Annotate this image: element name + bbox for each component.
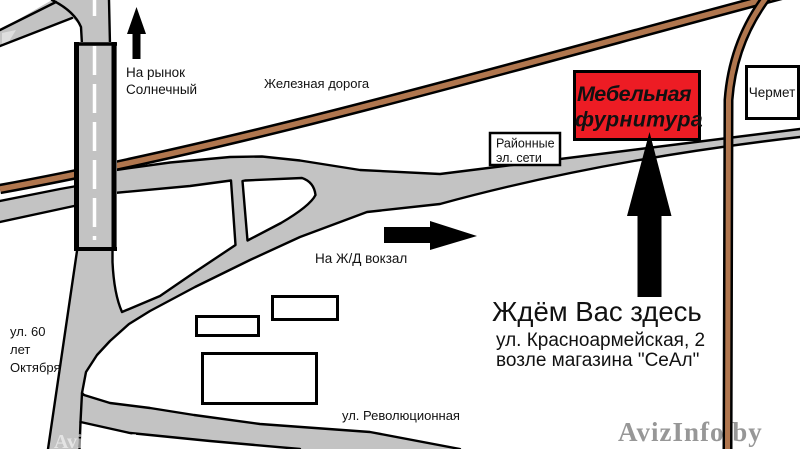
svg-text:Чермет: Чермет: [749, 85, 796, 100]
svg-text:Ждём Вас здесь: Ждём Вас здесь: [492, 296, 702, 327]
svg-text:На рынок: На рынок: [126, 65, 185, 80]
svg-text:фурнитура: фурнитура: [575, 108, 703, 132]
svg-text:Районные: Районные: [496, 137, 555, 151]
svg-text:ул. Революционная: ул. Революционная: [342, 408, 460, 423]
svg-text:AvizInfo.by: AvizInfo.by: [54, 431, 153, 449]
svg-text:Мебельная: Мебельная: [577, 82, 692, 106]
svg-text:Железная дорога: Железная дорога: [264, 76, 370, 91]
svg-text:Октября: Октября: [10, 360, 61, 375]
svg-text:возле магазина "СеАл": возле магазина "СеАл": [496, 350, 699, 371]
svg-text:лет: лет: [10, 342, 30, 357]
svg-text:эл. сети: эл. сети: [496, 151, 542, 165]
svg-text:На Ж/Д вокзал: На Ж/Д вокзал: [315, 251, 407, 266]
svg-text:Солнечный: Солнечный: [126, 82, 197, 97]
svg-text:AvizInfo.by: AvizInfo.by: [618, 417, 763, 447]
svg-text:ул. Красноармейская, 2: ул. Красноармейская, 2: [496, 330, 705, 351]
svg-text:ул. 60: ул. 60: [10, 324, 45, 339]
